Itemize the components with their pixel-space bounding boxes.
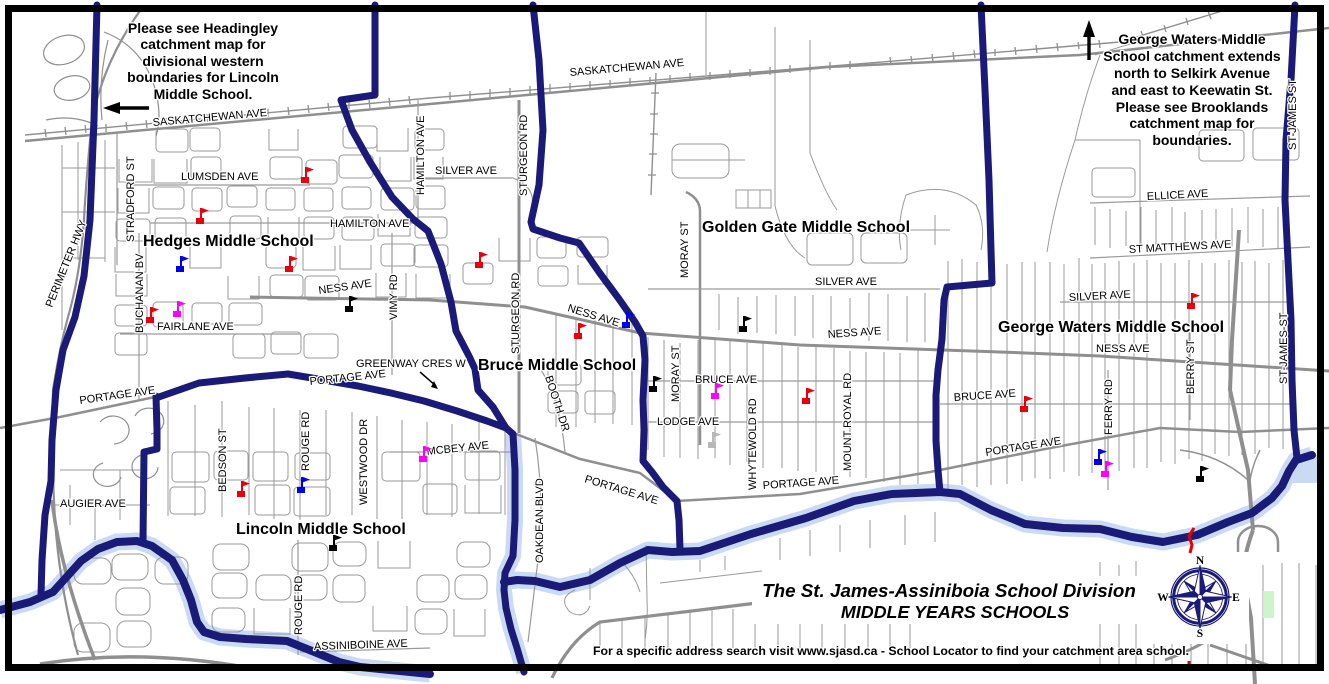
svg-text:S: S [1197, 628, 1203, 640]
svg-text:BERRY ST: BERRY ST [1185, 339, 1197, 394]
svg-text:north to Selkirk Avenue: north to Selkirk Avenue [1114, 65, 1270, 81]
svg-text:boundaries for Lincoln: boundaries for Lincoln [127, 69, 279, 85]
svg-text:George Waters Middle School: George Waters Middle School [998, 319, 1224, 336]
svg-text:VIMY RD: VIMY RD [388, 274, 400, 320]
svg-text:GREENWAY CRES W: GREENWAY CRES W [356, 358, 466, 370]
svg-text:BUCHANAN BV: BUCHANAN BV [134, 253, 146, 333]
svg-text:WHYTEWOLD RD: WHYTEWOLD RD [747, 398, 759, 490]
svg-text:BEDSON ST: BEDSON ST [217, 428, 229, 492]
svg-text:ST-JAMES-ST: ST-JAMES-ST [1278, 312, 1290, 384]
svg-text:ST-JAMES ST: ST-JAMES ST [1287, 79, 1299, 150]
svg-text:School catchment extends: School catchment extends [1103, 48, 1281, 64]
svg-text:Lincoln Middle School: Lincoln Middle School [236, 521, 406, 538]
svg-text:E: E [1232, 592, 1240, 604]
svg-text:The St. James-Assiniboia Schoo: The St. James-Assiniboia School Division [762, 580, 1136, 601]
svg-text:and east to Keewatin St.: and east to Keewatin St. [1111, 82, 1272, 98]
svg-text:catchment map for: catchment map for [1129, 115, 1255, 131]
svg-text:catchment map for: catchment map for [140, 36, 266, 52]
svg-text:boundaries.: boundaries. [1152, 132, 1231, 148]
svg-text:MIDDLE YEARS SCHOOLS: MIDDLE YEARS SCHOOLS [841, 602, 1069, 622]
svg-text:Bruce Middle School: Bruce Middle School [478, 357, 636, 374]
svg-text:STRADFORD ST: STRADFORD ST [125, 156, 137, 242]
svg-text:Please see Headingley: Please see Headingley [128, 20, 278, 36]
svg-text:OAKDEAN BLVD: OAKDEAN BLVD [534, 478, 546, 563]
svg-text:LUMSDEN AVE: LUMSDEN AVE [181, 171, 258, 183]
svg-text:HAMILTON AVE: HAMILTON AVE [330, 218, 409, 230]
svg-text:FERRY RD: FERRY RD [1103, 379, 1115, 435]
svg-text:NESS AVE: NESS AVE [1096, 343, 1150, 355]
svg-text:MORAY ST: MORAY ST [670, 345, 682, 402]
svg-text:LODGE AVE: LODGE AVE [657, 416, 719, 428]
svg-text:FAIRLANE AVE: FAIRLANE AVE [157, 321, 234, 333]
svg-text:divisional western: divisional western [142, 53, 263, 69]
svg-text:Golden Gate Middle School: Golden Gate Middle School [702, 219, 910, 236]
svg-text:George Waters Middle: George Waters Middle [1118, 31, 1266, 47]
svg-text:BRUCE AVE: BRUCE AVE [695, 374, 757, 386]
svg-text:For a specific address search: For a specific address search visit www.… [593, 644, 1189, 658]
svg-text:Please see Brooklands: Please see Brooklands [1116, 99, 1269, 115]
svg-text:HAMILTON AVE: HAMILTON AVE [415, 116, 427, 195]
svg-text:SILVER AVE: SILVER AVE [435, 165, 497, 177]
svg-text:WESTWOOD DR: WESTWOOD DR [358, 419, 370, 505]
svg-text:SILVER AVE: SILVER AVE [815, 276, 877, 288]
svg-text:ROUGE RD: ROUGE RD [293, 576, 305, 635]
svg-text:AUGIER AVE: AUGIER AVE [60, 498, 126, 510]
svg-text:ROUGE RD: ROUGE RD [300, 412, 312, 471]
svg-text:W: W [1157, 592, 1169, 604]
svg-text:MOUNT ROYAL RD: MOUNT ROYAL RD [842, 373, 854, 471]
svg-text:MORAY ST: MORAY ST [679, 221, 691, 278]
svg-text:STURGEON RD: STURGEON RD [518, 115, 530, 196]
svg-text:Middle School.: Middle School. [154, 86, 253, 102]
svg-text:Hedges Middle School: Hedges Middle School [143, 233, 314, 250]
svg-text:STURGEON RD: STURGEON RD [510, 273, 522, 354]
svg-text:N: N [1196, 555, 1205, 567]
